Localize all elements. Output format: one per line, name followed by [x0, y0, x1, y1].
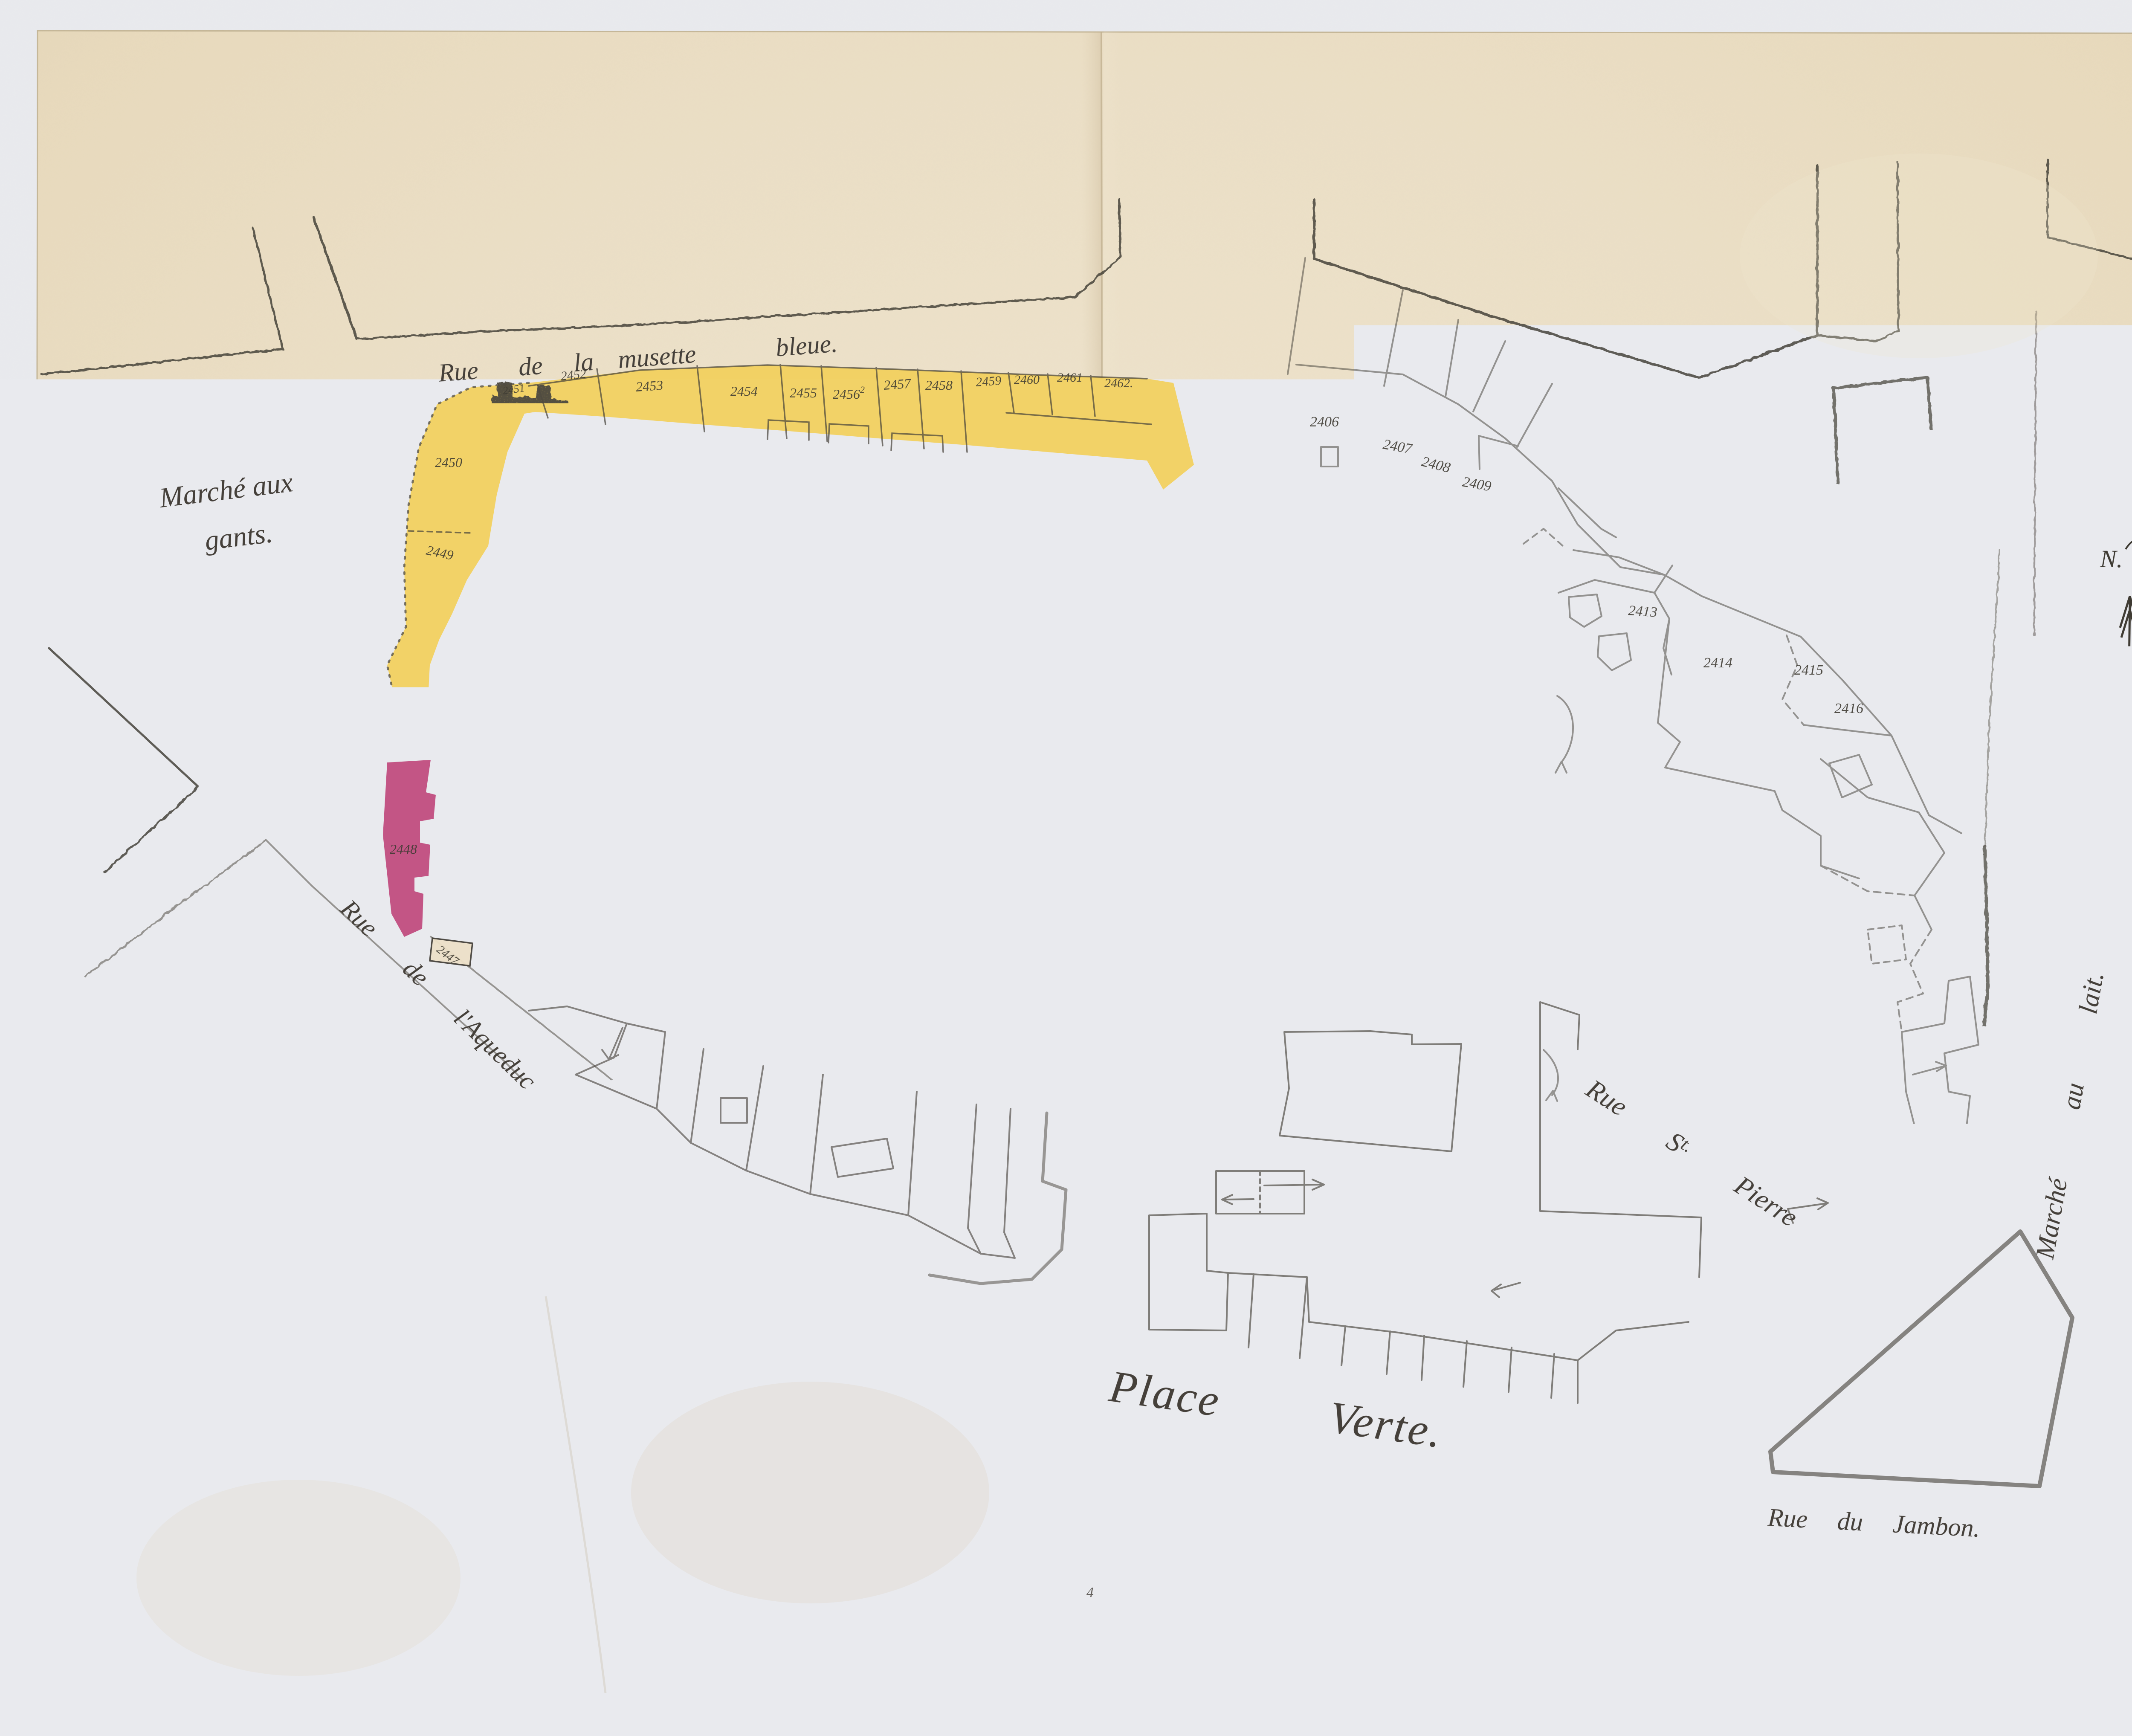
svg-text:2460: 2460: [1014, 373, 1040, 387]
svg-text:Propriété à acquérir .: Propriété à acquérir .: [252, 1139, 446, 1164]
svg-text:2421: 2421: [1941, 1060, 1970, 1076]
svg-text:2411: 2411: [1548, 544, 1577, 562]
svg-text:2432: 2432: [1347, 1343, 1376, 1359]
svg-text:2459: 2459: [975, 374, 1002, 389]
svg-text:24562: 24562: [833, 384, 865, 402]
svg-text:4: 4: [1086, 1585, 1094, 1600]
svg-text:2434: 2434: [1258, 1330, 1287, 1345]
svg-text:2422: 2422: [1912, 1137, 1941, 1153]
svg-text:2452: 2452: [560, 367, 587, 383]
svg-text:2437: 2437: [1157, 1232, 1187, 1248]
svg-text:2426: 2426: [1707, 1344, 1736, 1359]
svg-text:2441: 2441: [873, 1194, 902, 1210]
svg-text:2429: 2429: [1471, 1361, 1500, 1377]
svg-text:0: 0: [263, 1357, 268, 1370]
svg-text:30: 30: [567, 1362, 578, 1375]
svg-text:2414: 2414: [1703, 655, 1732, 671]
svg-text:2445: 2445: [631, 1076, 660, 1092]
svg-text:2439: 2439: [974, 1228, 1003, 1243]
svg-text:2457: 2457: [883, 375, 912, 393]
svg-text:„ démolies .: „ démolies .: [298, 1117, 406, 1142]
svg-text:2419: 2419: [1933, 865, 1962, 881]
svg-text:40: 40: [663, 1363, 675, 1376]
svg-text:2: 2: [240, 1364, 244, 1373]
svg-text:8: 8: [179, 1362, 183, 1372]
svg-text:2450: 2450: [435, 455, 462, 470]
svg-text:2410: 2410: [1503, 510, 1533, 529]
svg-text:2412: 2412: [1592, 568, 1622, 585]
svg-text:5: 5: [210, 1365, 213, 1372]
svg-text:2446: 2446: [568, 1032, 597, 1048]
svg-text:Echelle de 1500e: Echelle de 1500e: [315, 1395, 449, 1425]
svg-text:2418: 2418: [1908, 816, 1937, 832]
svg-text:2440: 2440: [934, 1220, 963, 1236]
svg-text:7: 7: [190, 1365, 194, 1372]
svg-text:N.: N.: [2100, 545, 2123, 573]
svg-text:3: 3: [230, 1365, 234, 1373]
svg-text:Propriétés particulières.: Propriétés particulières.: [255, 1095, 472, 1119]
svg-text:2425: 2425: [1697, 1289, 1726, 1305]
svg-text:2427: 2427: [1605, 1368, 1635, 1384]
svg-text:2444: 2444: [687, 1109, 715, 1125]
svg-text:9: 9: [170, 1365, 173, 1372]
svg-text:6: 6: [200, 1363, 204, 1372]
svg-text:2462.: 2462.: [1104, 376, 1133, 390]
svg-text:2461: 2461: [1057, 371, 1083, 385]
svg-text:20: 20: [465, 1362, 476, 1374]
svg-text:2442: 2442: [797, 1167, 826, 1182]
svg-text:2420: 2420: [1954, 966, 1983, 982]
svg-text:S.: S.: [600, 1466, 620, 1494]
svg-text:2438: 2438: [1013, 1236, 1042, 1252]
svg-text:2433: 2433: [1309, 1341, 1338, 1356]
svg-text:2454: 2454: [730, 383, 758, 399]
svg-text:2458: 2458: [925, 377, 953, 393]
svg-text:1: 1: [251, 1366, 254, 1373]
svg-text:2415: 2415: [1794, 662, 1823, 678]
svg-text:10: 10: [365, 1361, 376, 1373]
svg-text:2436: 2436: [1152, 1302, 1181, 1318]
svg-text:2435: 2435: [1211, 1328, 1240, 1344]
svg-text:2423: 2423: [1881, 1211, 1910, 1226]
svg-text:2413: 2413: [1628, 603, 1657, 620]
svg-text:2416: 2416: [1834, 701, 1863, 716]
svg-text:2406: 2406: [1310, 414, 1339, 430]
svg-text:2417: 2417: [1858, 765, 1888, 780]
svg-text:2424: 2424: [1787, 1266, 1816, 1282]
svg-text:2428: 2428: [1513, 1363, 1542, 1379]
svg-text:2431: 2431: [1399, 1353, 1423, 1367]
svg-text:2443: 2443: [736, 1131, 765, 1147]
svg-text:10: 10: [159, 1356, 170, 1369]
svg-text:2430: 2430: [1429, 1354, 1458, 1370]
svg-text:2455: 2455: [790, 385, 817, 400]
svg-text:4: 4: [220, 1363, 224, 1373]
svg-text:2453: 2453: [635, 377, 663, 394]
svg-text:2448: 2448: [390, 841, 417, 857]
